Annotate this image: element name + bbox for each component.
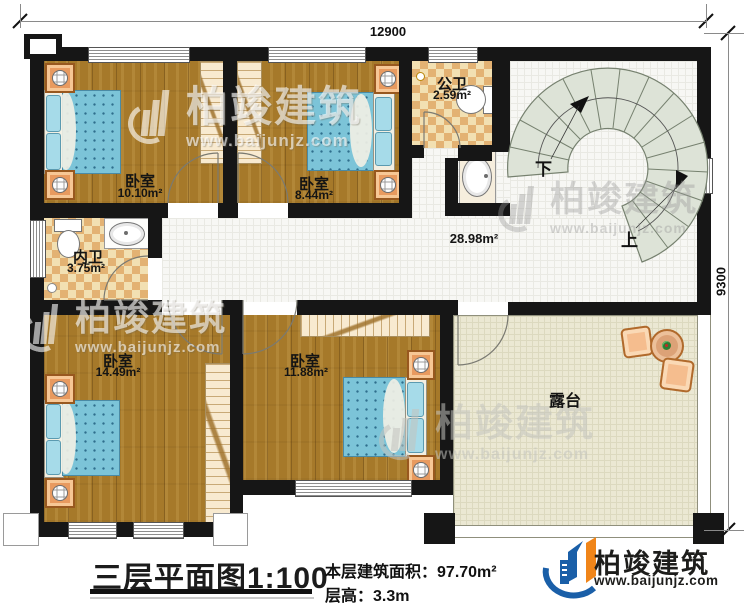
- title-underline-thin: [90, 597, 314, 599]
- floor-height-value: 3.3m: [373, 588, 409, 605]
- floor-area-stat: 本层建筑面积：97.70m²: [325, 558, 497, 582]
- room-area-bedroom4: 11.88m²: [284, 365, 328, 379]
- hall-area-label: 28.98m²: [450, 231, 498, 246]
- floor-height-stat: 层高：3.3m: [325, 582, 409, 605]
- room-area-private-bath: 3.75m²: [67, 261, 105, 275]
- stair-down-label: 下: [535, 155, 552, 180]
- dimension-ext: [704, 33, 744, 34]
- dimension-ext: [706, 4, 707, 28]
- floor-height-label: 层高：: [325, 588, 373, 605]
- room-area-bedroom2: 8.44m²: [295, 188, 333, 202]
- dimension-ext: [704, 530, 744, 531]
- dimension-ext: [20, 4, 21, 28]
- door-arcs: [104, 112, 508, 365]
- dimension-width-label: 12900: [370, 24, 406, 39]
- room-label-terrace: 露台: [549, 387, 581, 411]
- plan-overlay: [0, 0, 750, 605]
- dimension-line-top: [20, 21, 707, 22]
- floor-plan: 柏竣建筑 www.baijunjz.com 柏竣建筑 www.baijunjz.…: [0, 0, 750, 605]
- floor-area-label: 本层建筑面积：: [325, 564, 437, 581]
- room-area-bedroom3: 14.49m²: [96, 365, 141, 379]
- dimension-height-label: 9300: [714, 257, 729, 307]
- brand-logo-icon: [546, 537, 596, 595]
- stair-up-label: 上: [621, 226, 638, 251]
- room-area-bedroom1: 10.10m²: [118, 186, 163, 200]
- floor-area-value: 97.70m²: [437, 564, 497, 581]
- room-area-public-bath: 2.59m²: [433, 88, 471, 102]
- title-underline: [90, 589, 312, 594]
- brand-site: www.baijunjz.com: [594, 573, 719, 588]
